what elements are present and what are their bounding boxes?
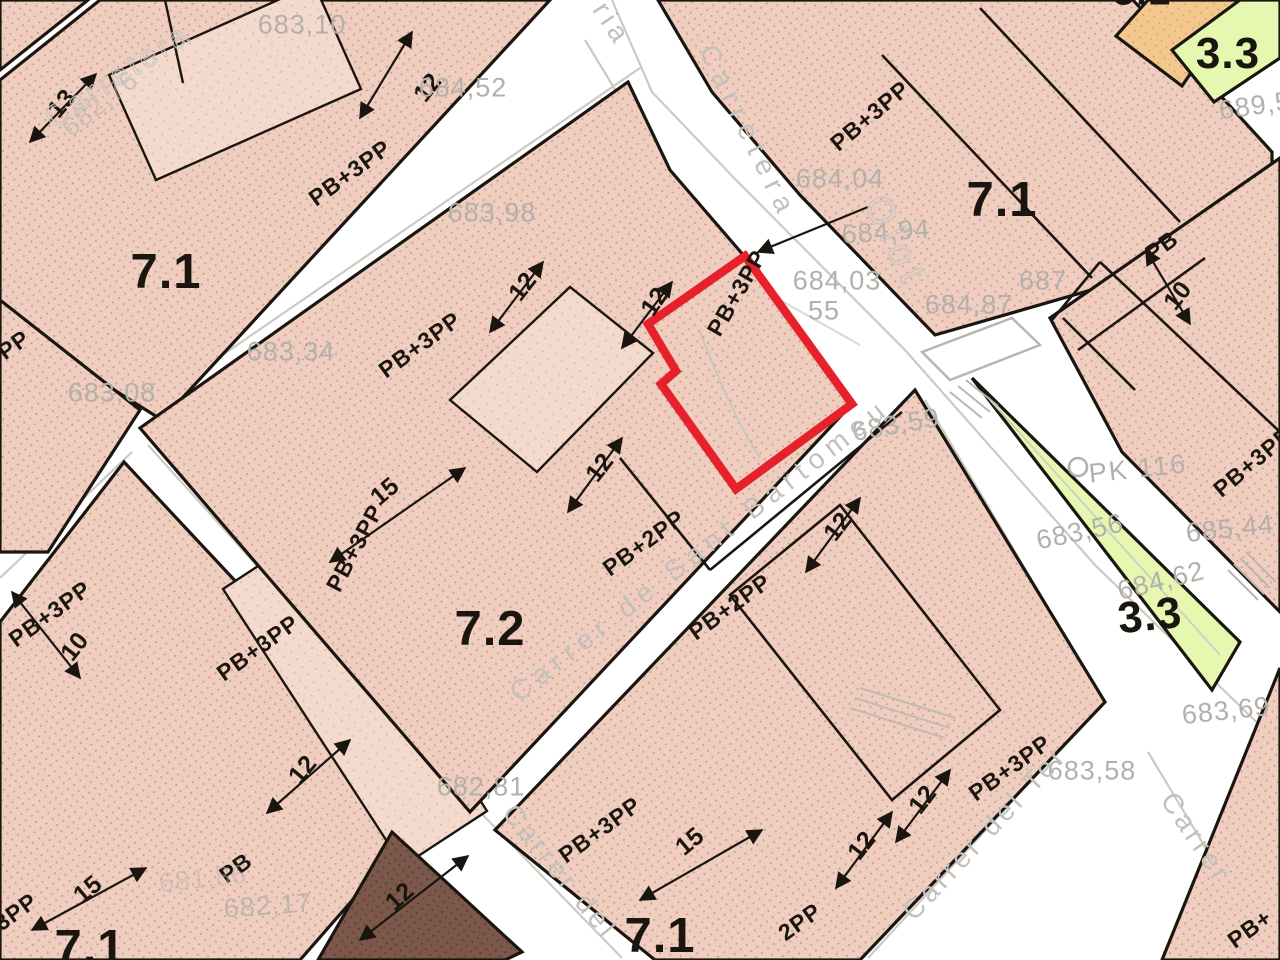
- km-post-icon: [1069, 458, 1087, 476]
- map-canvas[interactable]: [0, 0, 1280, 960]
- map-viewport: 7.17.17.27.17.13.33.35.1PB+3PPPB+3PPPB+3…: [0, 0, 1280, 960]
- block-bottomright-corner: [1162, 668, 1280, 960]
- city-blocks: [0, 0, 1280, 960]
